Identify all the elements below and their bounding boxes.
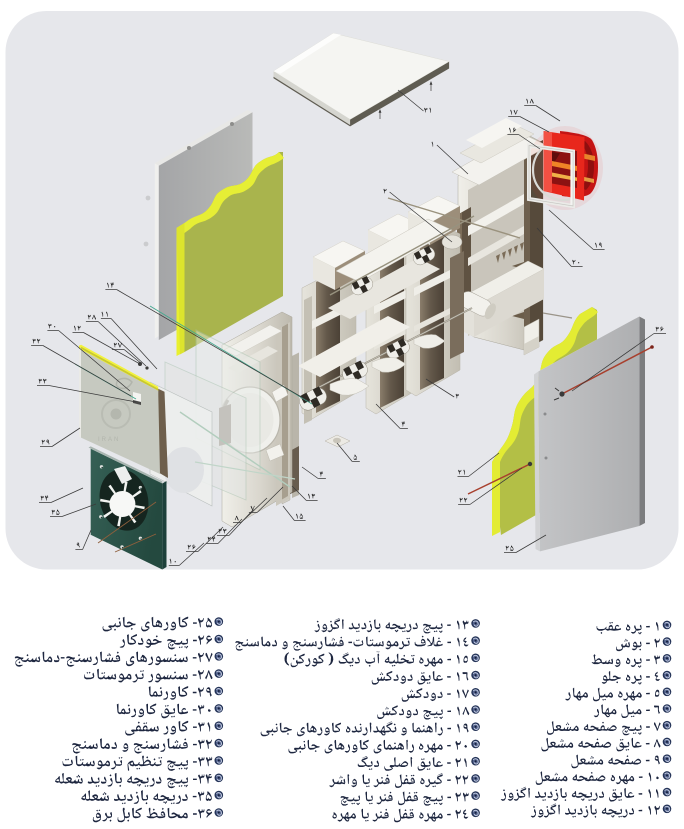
svg-text:IRAN: IRAN <box>98 437 120 443</box>
